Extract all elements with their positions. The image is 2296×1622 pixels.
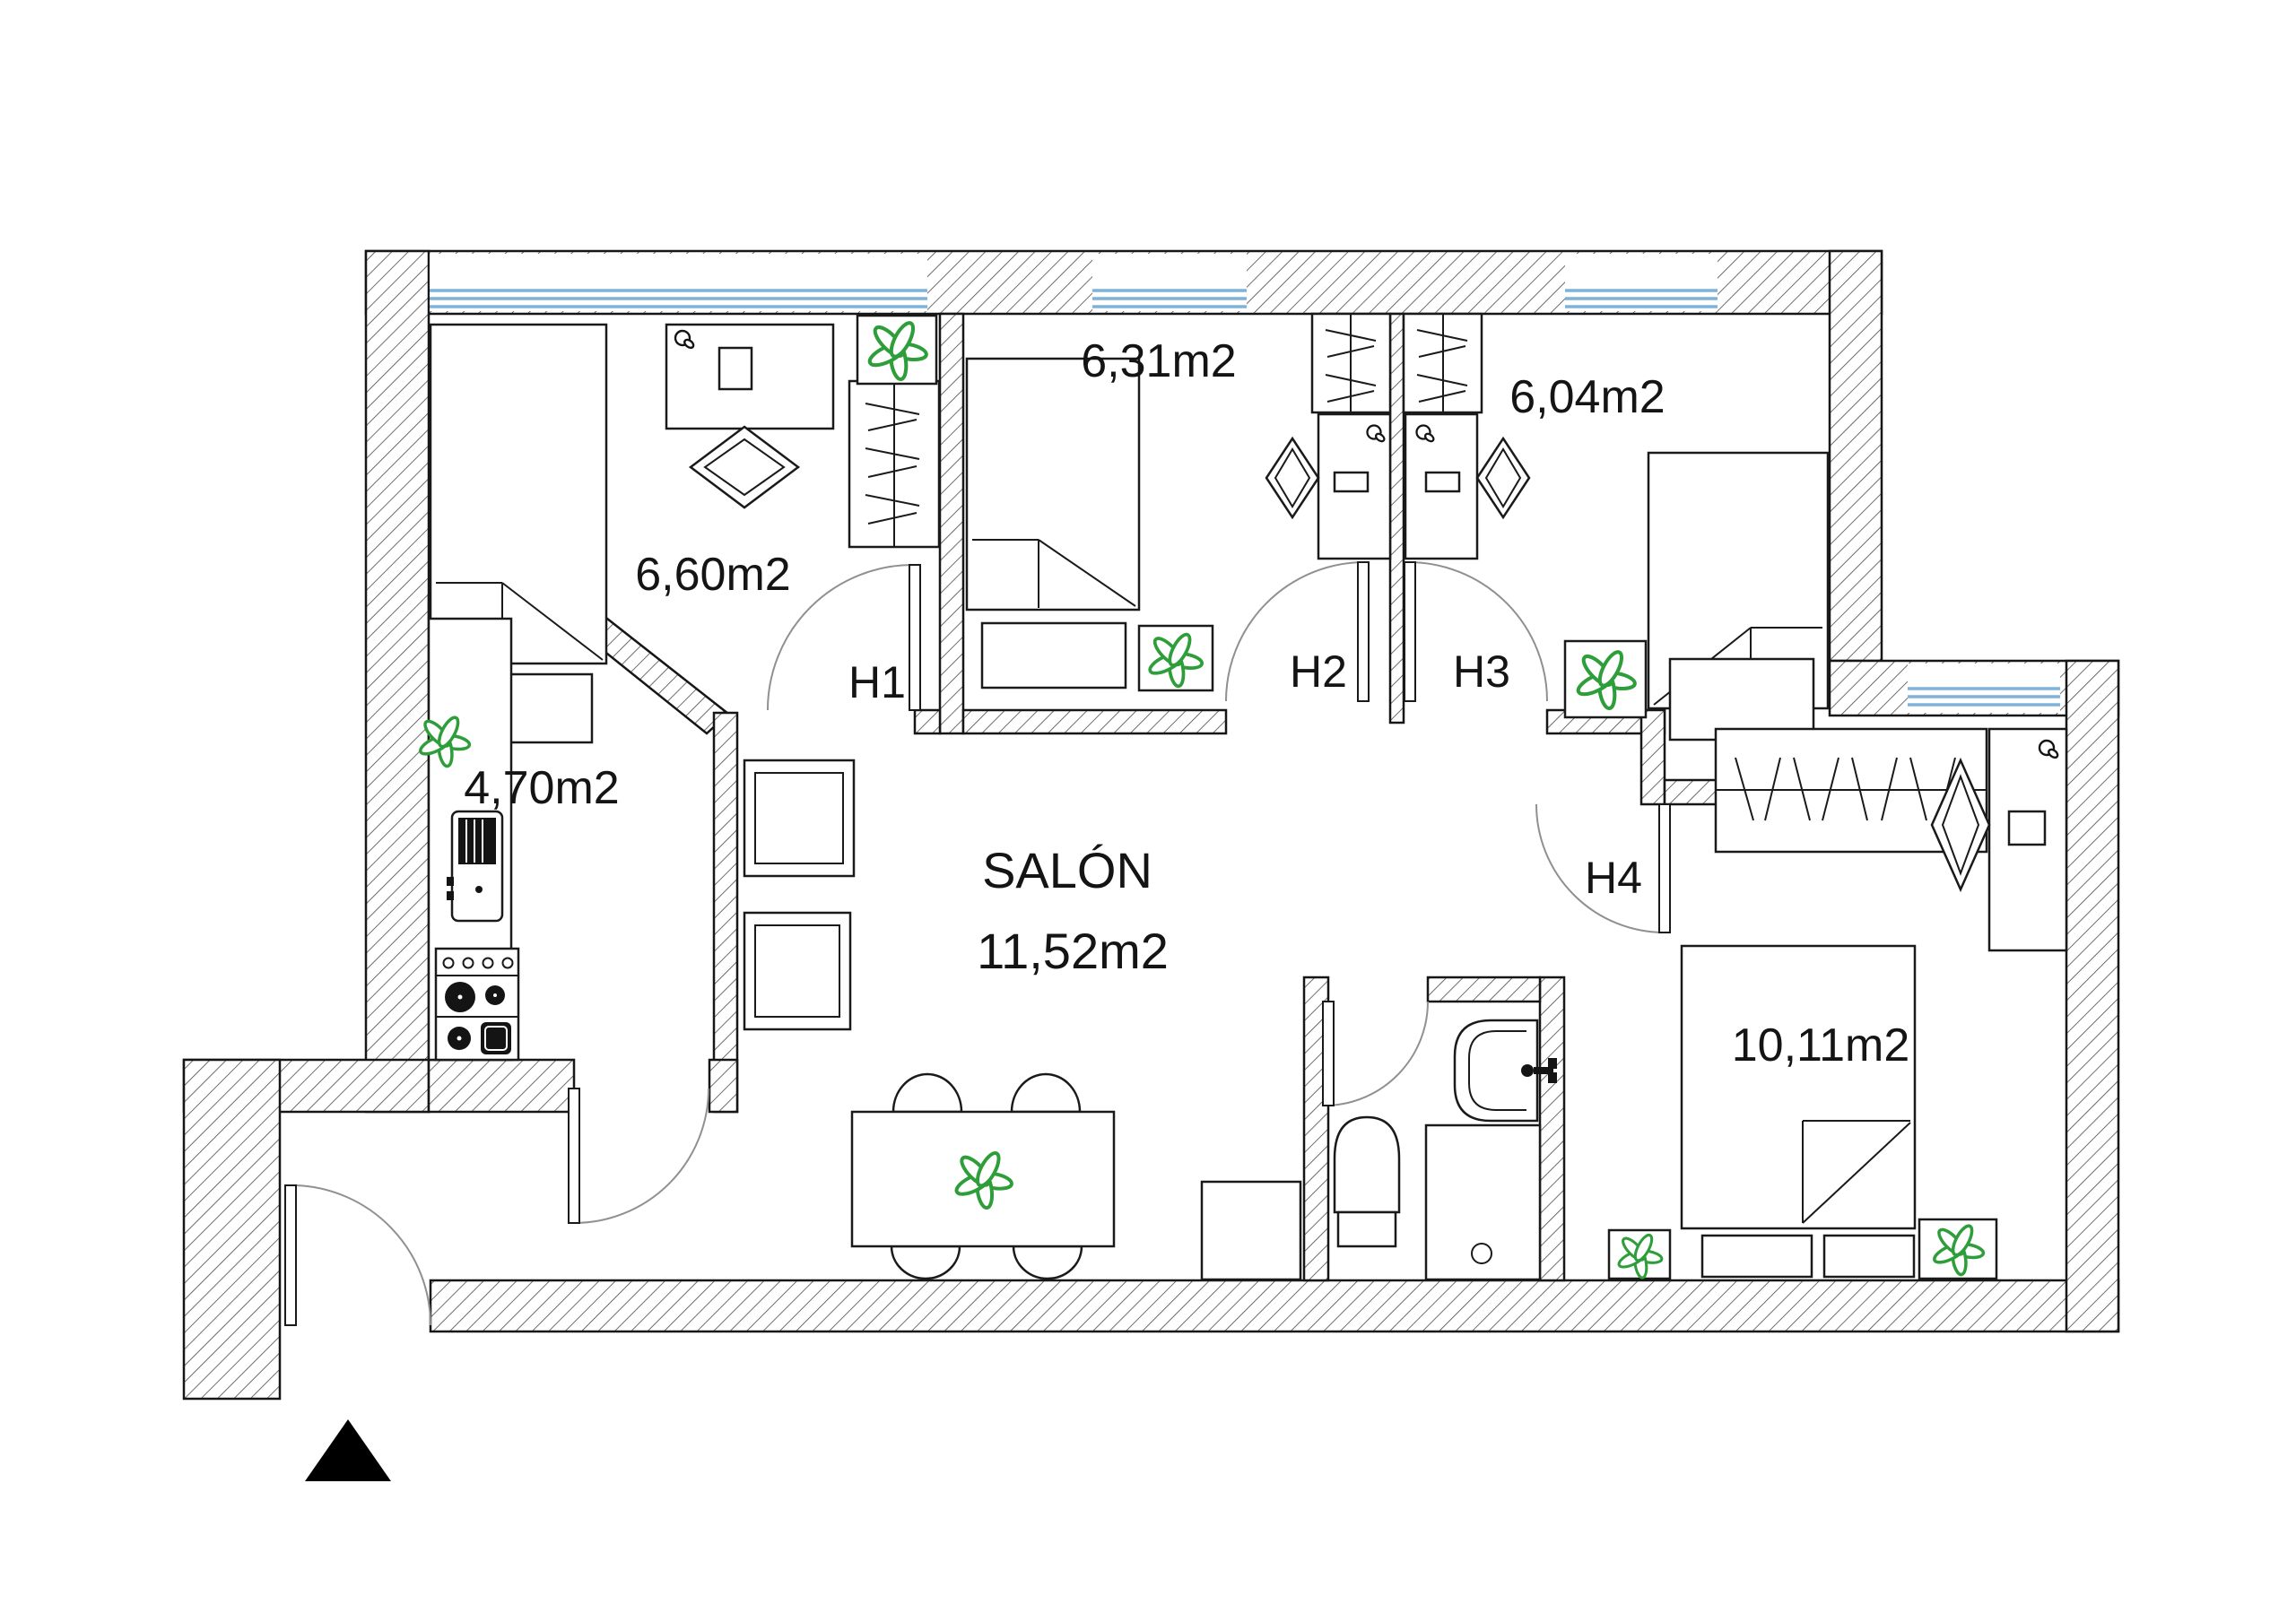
dining-chair [1012,1074,1080,1112]
window-room1 [430,254,927,311]
wall-between-h2-h3-nooks [1390,314,1404,723]
window-room2 [1092,254,1247,311]
desk-monitor [1426,473,1459,491]
fridge [447,811,502,921]
wall-between-room1-room2 [940,314,963,733]
wardrobe [1404,314,1482,412]
room2-area-label: 6,31m2 [1081,335,1236,387]
bathroom-door [1323,1002,1428,1106]
toilet [1335,1117,1399,1246]
kitchen-door [569,1089,709,1223]
window-room4 [1908,664,2060,713]
desk-monitor [2009,811,2045,845]
wall-south-room2 [963,710,1226,733]
under-bed-drawer [1824,1236,1914,1277]
plant-box [857,316,936,384]
door-h1-label: H1 [848,657,906,707]
salon-name-label: SALÓN [982,842,1152,898]
door-h4-label: H4 [1585,853,1642,903]
room3-area-label: 6,04m2 [1509,371,1665,423]
salon-furniture [744,760,1300,1279]
shower [1426,1125,1540,1279]
wall-right-lower [2066,661,2118,1331]
desk-monitor [719,348,752,389]
bed [1682,946,1915,1228]
wall-left [366,251,429,1112]
wall-jog-room3 [1641,710,1665,804]
wall-stub-h1 [915,710,940,733]
armchair [744,913,850,1029]
under-bed-drawer [1702,1236,1812,1277]
wall-bathroom-right [1540,977,1564,1280]
door-h3-label: H3 [1453,646,1510,697]
salon-area-label: 11,52m2 [977,923,1169,979]
plant-box [1609,1230,1670,1279]
wardrobe [849,381,939,547]
window-room3 [1565,254,1718,311]
bathroom-furniture [1335,1020,1557,1279]
wall-kitchen-south-corner [709,1060,737,1112]
room4-area-label: 10,11m2 [1732,1019,1910,1071]
wardrobe [1312,314,1390,412]
plant-box [1919,1219,1996,1279]
entrance-door [285,1185,430,1325]
dining-chair [893,1074,961,1112]
bed [430,325,606,664]
wall-entrance-step-vertical [184,1060,280,1399]
kitchen-furniture [418,619,518,1060]
wall-right-upper [1830,251,1882,661]
dining-chair [1013,1246,1082,1279]
plant-box [1565,641,1646,717]
wall-kitchen-south [429,1060,574,1112]
armchair [744,760,854,876]
door-h2-label: H2 [1290,646,1347,697]
wall-bathroom-top [1428,977,1540,1002]
nightstand [1670,659,1813,740]
entrance-triangle-icon [305,1419,391,1481]
floor-plan: 6,60m2 6,31m2 6,04m2 4,70m2 SALÓN 11,52m… [0,0,2296,1622]
plant-box [1139,626,1213,690]
floor-plan-canvas: 6,60m2 6,31m2 6,04m2 4,70m2 SALÓN 11,52m… [0,0,2296,1622]
under-bed-drawer [982,623,1126,688]
cabinet [1202,1182,1300,1279]
dining-chair [891,1246,960,1279]
kitchen-area-label: 4,70m2 [464,762,619,814]
desk-monitor [1335,473,1368,491]
room-h4-furniture [1609,729,2066,1279]
wall-kitchen-right [714,713,737,1112]
wall-bottom [430,1280,2118,1331]
bed [967,359,1139,610]
room1-area-label: 6,60m2 [635,549,790,601]
stove [436,949,518,1060]
